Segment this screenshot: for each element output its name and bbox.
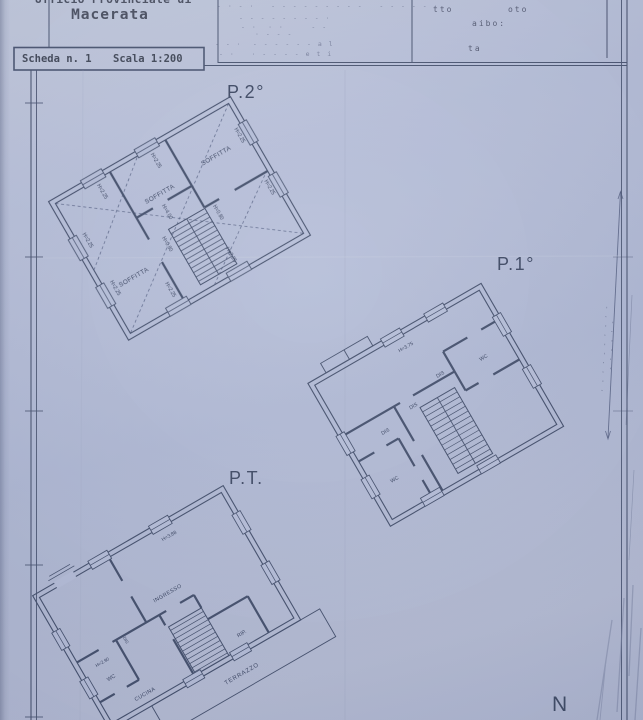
pt-staircase bbox=[168, 608, 228, 675]
faded-typewriter-line: - · - · - - - - - - - - - - - - - - · bbox=[217, 2, 439, 10]
faded-typewriter-line: · - - - bbox=[255, 30, 293, 38]
office-name-line2: Macerata bbox=[35, 7, 185, 23]
room-label-rip: RIP. bbox=[236, 629, 247, 639]
scale-label: Scala 1:200 bbox=[113, 53, 183, 65]
margin-dimension-arrow bbox=[606, 192, 635, 561]
svg-text:H=2.25: H=2.25 bbox=[149, 152, 162, 169]
svg-text:H=4.00: H=4.00 bbox=[160, 204, 173, 221]
faded-typewriter-line: - - - - - - - - · bbox=[239, 14, 331, 22]
room-label-dis: DIS bbox=[122, 636, 130, 645]
room-label-soffitta: SOFFITTA bbox=[118, 266, 151, 289]
svg-text:H=0.80: H=0.80 bbox=[211, 204, 224, 221]
office-name-line1: Ufficio Provinciale di bbox=[35, 0, 185, 6]
north-label: N bbox=[552, 693, 568, 717]
faded-typewriter-line: aibo: bbox=[472, 19, 506, 28]
plan-title-p1: P.1° bbox=[497, 254, 535, 275]
p1-staircase bbox=[420, 388, 493, 474]
faded-typewriter-line: tto oto bbox=[433, 5, 528, 14]
room-label-wc: WC bbox=[106, 673, 117, 683]
room-label-wc: WC bbox=[390, 475, 401, 485]
svg-text:H=0.80: H=0.80 bbox=[160, 236, 173, 253]
room-label-dis: DIS bbox=[408, 402, 419, 412]
room-label-cucina: CUCINA bbox=[134, 686, 157, 703]
room-label-wc: WC bbox=[479, 353, 490, 363]
room-label-dis: DIS bbox=[380, 427, 391, 437]
scheda-number: Scheda n. 1 bbox=[22, 53, 92, 65]
scanned-floor-plan-sheet: Ufficio Provinciale di Macerata Scheda n… bbox=[0, 0, 643, 720]
pen-stroke-marks bbox=[597, 585, 641, 720]
room-label-soffitta: SOFFITTA bbox=[144, 183, 177, 206]
pt-height-label: H=3.88 bbox=[161, 530, 178, 543]
room-label-soffitta: SOFFITTA bbox=[200, 145, 233, 168]
svg-text:H=2.25: H=2.25 bbox=[224, 246, 237, 263]
p1-height-label: H=3.75 bbox=[398, 341, 415, 354]
faded-typewriter-line: - · · - - - - e t i bbox=[219, 50, 333, 58]
faded-typewriter-line: ta bbox=[468, 44, 482, 53]
faded-typewriter-line: - - · - - - - - - a l bbox=[215, 40, 334, 48]
svg-text:H=2.25: H=2.25 bbox=[95, 183, 108, 200]
office-header: Ufficio Provinciale di Macerata bbox=[35, 0, 185, 23]
room-label-ingresso: INGRESSO bbox=[153, 583, 183, 604]
wc-height-label: H=2.90 bbox=[95, 656, 111, 668]
